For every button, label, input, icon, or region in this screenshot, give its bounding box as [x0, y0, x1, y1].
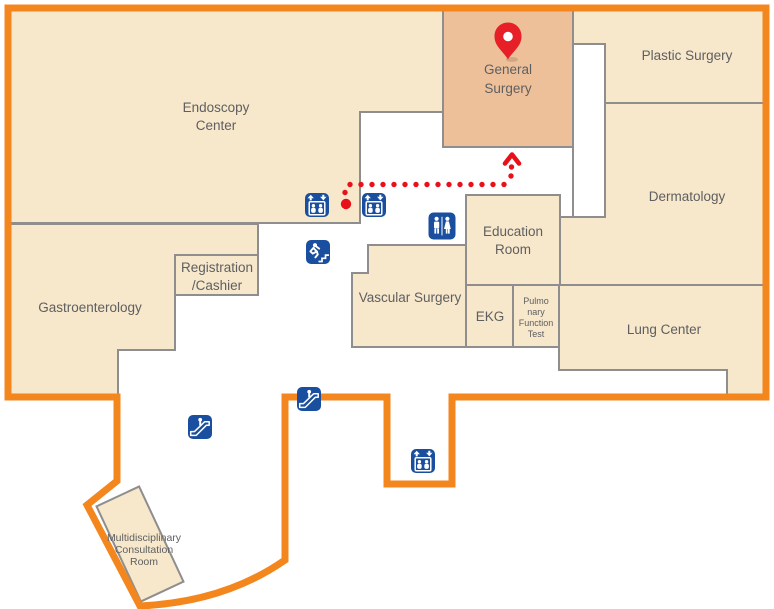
label-education-line2: Room — [495, 242, 531, 257]
room-education-room[interactable] — [466, 195, 560, 285]
label-lung-center: Lung Center — [627, 322, 702, 337]
label-multidisciplinary-line1: Multidisciplinary — [107, 532, 182, 544]
label-general-surgery-line2: Surgery — [484, 81, 532, 96]
elevator-icon[interactable] — [305, 193, 329, 217]
label-vascular-surgery: Vascular Surgery — [359, 290, 462, 305]
label-pulmonary-line3: Function — [519, 318, 554, 328]
label-pulmonary-line1: Pulmo — [523, 296, 549, 306]
label-pulmonary-line2: nary — [527, 307, 545, 317]
label-registration-line1: Registration — [181, 260, 253, 275]
label-endoscopy-line1: Endoscopy — [183, 100, 250, 115]
label-general-surgery-line1: General — [484, 62, 532, 77]
route-arrow-head — [505, 155, 519, 164]
void-shaft — [573, 44, 605, 217]
escalator-icon[interactable] — [188, 415, 212, 439]
label-ekg: EKG — [476, 309, 505, 324]
label-multidisciplinary-line2: Consultation — [115, 544, 174, 556]
elevator-icon[interactable] — [411, 449, 435, 473]
room-endoscopy-center[interactable] — [8, 8, 443, 223]
label-plastic-surgery: Plastic Surgery — [642, 48, 733, 63]
floor-map: Endoscopy Center General Surgery Plastic… — [0, 0, 774, 609]
label-gastroenterology: Gastroenterology — [38, 300, 142, 315]
label-dermatology: Dermatology — [649, 189, 726, 204]
emergency-exit-icon[interactable] — [306, 240, 330, 264]
label-endoscopy-line2: Center — [196, 118, 237, 133]
label-pulmonary-line4: Test — [528, 329, 545, 339]
route-start-dot — [341, 199, 351, 209]
restroom-icon[interactable] — [429, 213, 456, 240]
elevator-icon[interactable] — [362, 193, 386, 217]
label-registration-line2: /Cashier — [192, 278, 243, 293]
room-lung-center[interactable] — [559, 285, 766, 398]
label-multidisciplinary-line3: Room — [130, 556, 158, 568]
escalator-icon[interactable] — [297, 387, 321, 411]
label-education-line1: Education — [483, 224, 543, 239]
